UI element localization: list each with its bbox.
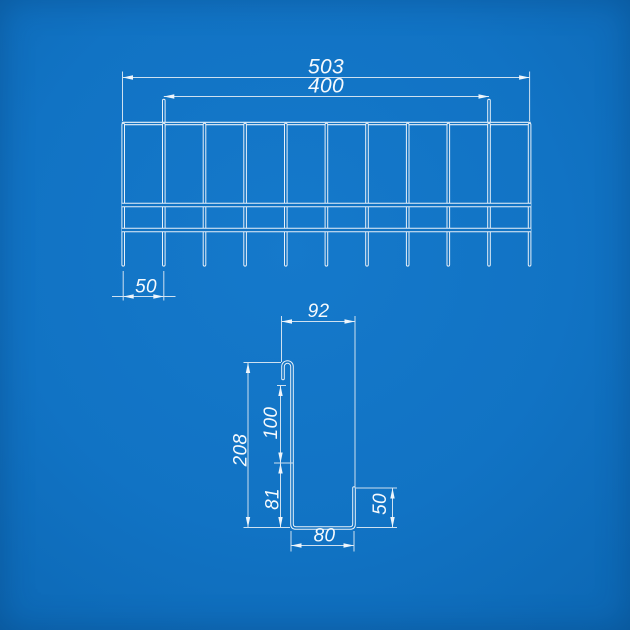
dim-label-upper-height: 100 [261,407,282,440]
dim-label-lower-height: 81 [263,488,284,510]
arrowhead-top [246,363,250,374]
profile-outline [283,362,354,528]
arrowhead-right [519,75,530,79]
profile-view: 92 208 100 [231,301,398,552]
arrowhead-bottom [246,517,250,528]
arrowhead-top [278,386,282,397]
dimension-wire-pitch: 50 [112,271,176,301]
dim-label-lip-height: 50 [370,493,391,515]
arrowhead-left [123,294,134,298]
arrowhead-left [123,75,134,79]
blueprint-canvas: 503 400 [0,0,630,630]
technical-drawing: 503 400 [0,0,630,630]
dimension-lip-height: 50 [356,488,397,528]
dimension-hook-spacing: 400 [164,75,489,99]
dimension-lower-height: 81 [263,463,284,528]
dimension-upper-height: 100 [261,386,293,464]
front-view: 503 400 [112,56,531,301]
arrowhead-bottom [390,517,394,528]
arrowhead-top [278,463,282,474]
arrowhead-left [164,94,175,98]
arrowhead-bottom [278,517,282,528]
arrowhead-left [282,319,293,323]
arrowhead-right [479,94,490,98]
dim-label-base-width: 80 [314,526,336,547]
arrowhead-right [344,543,355,547]
arrowhead-right [345,319,356,323]
arrowhead-left [291,543,302,547]
dim-label-wire-pitch: 50 [135,277,157,298]
arrowhead-bottom [278,453,282,464]
dim-label-total-height: 208 [231,434,252,468]
dim-label-top-depth: 92 [308,301,330,322]
dim-label-hook-spacing: 400 [308,75,344,98]
vertical-wires [123,125,529,265]
